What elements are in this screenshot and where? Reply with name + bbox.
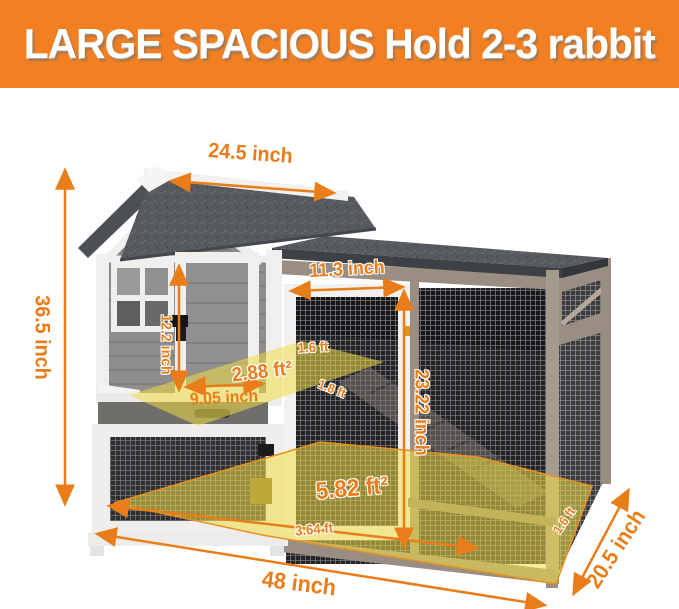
dim-run-door-height: 23.22 inch	[412, 361, 431, 464]
house-leg	[270, 546, 284, 556]
house-leg	[90, 546, 104, 556]
dim-upper-floor-depth: 9.05 inch	[177, 387, 272, 409]
dim-house-door-height: 12.2 inch	[159, 300, 174, 388]
dim-total-height: 36.5 inch	[32, 286, 53, 389]
rear-right-post	[601, 258, 611, 484]
lower-door-hinge	[258, 444, 274, 456]
dim-upper-floor-width: 1.6 ft	[284, 339, 341, 356]
product-infographic: 24.5 inch 36.5 inch 11.3 inch 12.2 inch …	[0, 0, 679, 609]
dim-run-door-width: 11.3 inch	[300, 258, 395, 282]
title-banner: LARGE SPACIOUS Hold 2-3 rabbit	[0, 0, 679, 88]
hutch-illustration	[0, 0, 679, 609]
banner-title: LARGE SPACIOUS Hold 2-3 rabbit	[24, 20, 655, 68]
